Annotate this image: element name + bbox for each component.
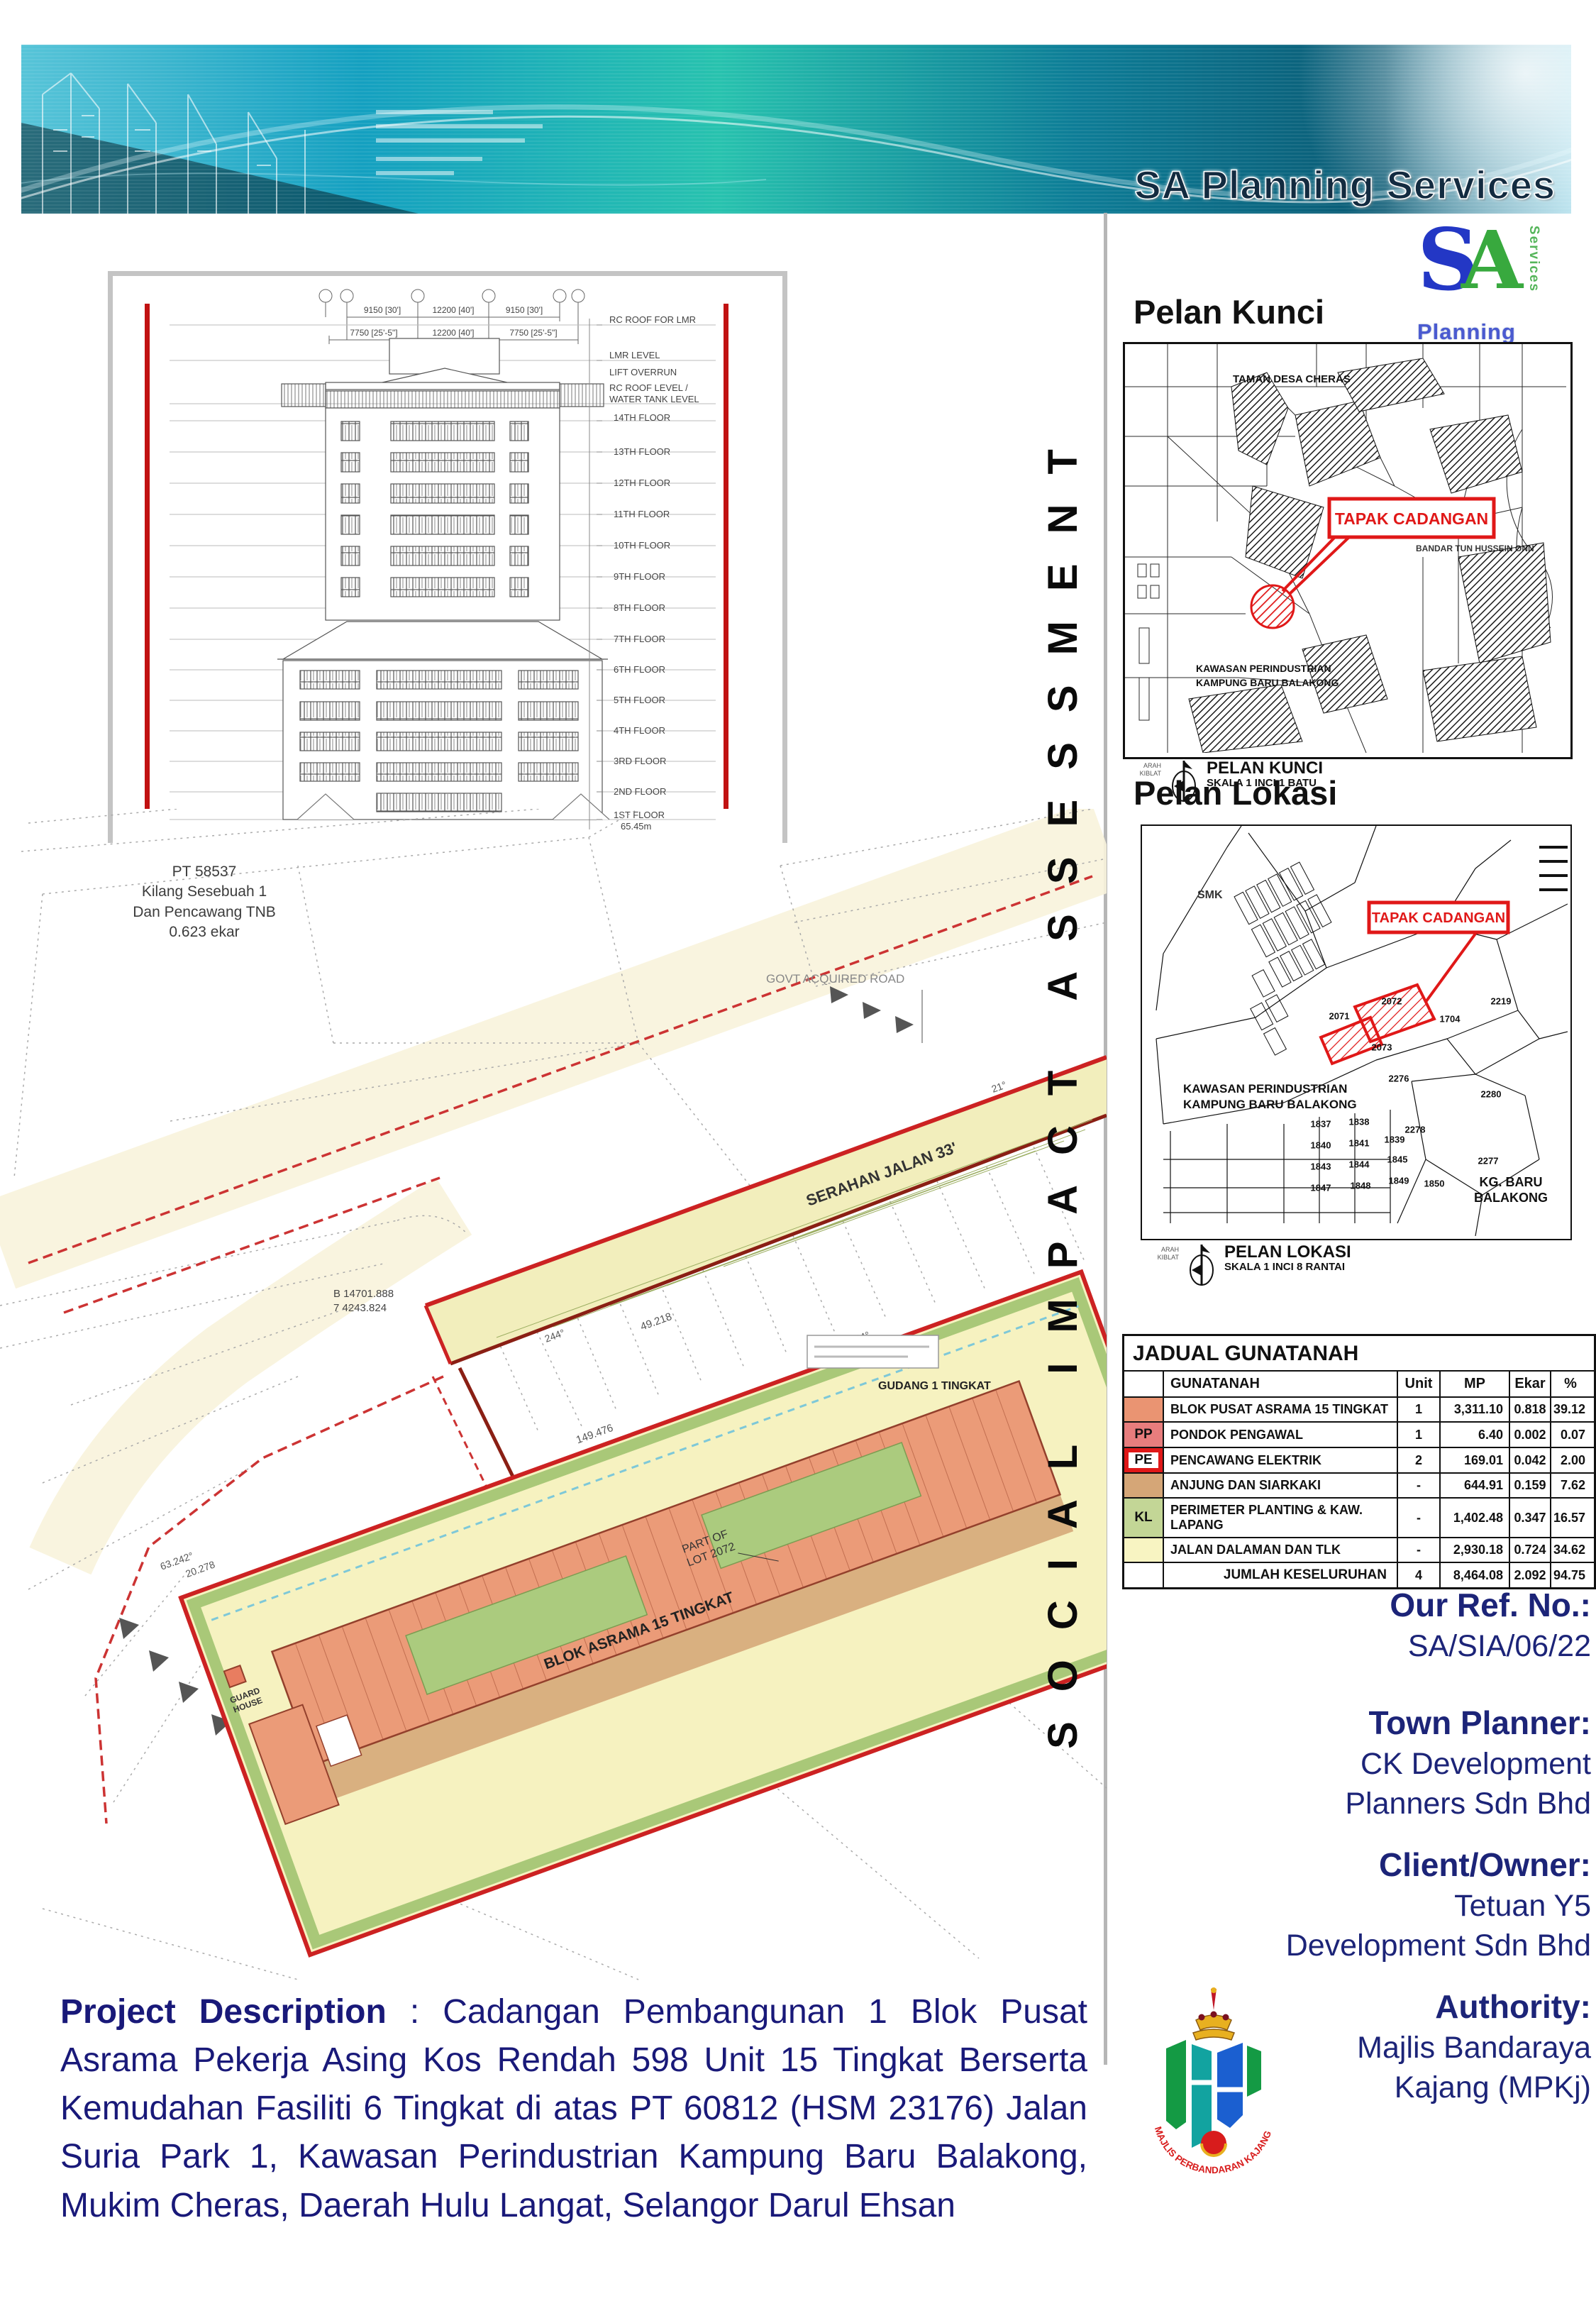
floor-label: 2ND FLOOR	[614, 786, 666, 797]
header-pct: %	[1551, 1372, 1590, 1396]
dim-label: 7750 [25'-5"]	[350, 328, 397, 338]
planner-label: Town Planner:	[1117, 1701, 1591, 1745]
site-layout-plan: SERAHAN JALAN 33' 49.218 244° 21° GOVT A…	[0, 809, 1107, 1983]
row-unit: 1	[1398, 1398, 1441, 1421]
row-name: ANJUNG DAN SIARKAKI	[1164, 1474, 1398, 1497]
floor-label: 11TH FLOOR	[614, 509, 670, 519]
floor-label: LIFT OVERRUN	[609, 367, 677, 377]
row-swatch	[1124, 1474, 1164, 1497]
table-row: ANJUNG DAN SIARKAKI - 644.91 0.159 7.62	[1124, 1474, 1594, 1499]
sa-logo-a: A	[1461, 214, 1523, 307]
floor-label: 10TH FLOOR	[614, 540, 670, 551]
ref-value: SA/SIA/06/22	[1117, 1627, 1591, 1667]
ref-block: Our Ref. No.: SA/SIA/06/22	[1117, 1584, 1591, 1667]
dim-label: 9150 [30']	[506, 305, 543, 315]
mpkj-crown	[1193, 1987, 1234, 2040]
lot-number-label: 2071	[1329, 1011, 1350, 1022]
floor-label: 13TH FLOOR	[614, 446, 670, 457]
row-ekar: 0.042	[1510, 1448, 1551, 1472]
lot-number-label: 1843	[1311, 1162, 1331, 1172]
lot-number-label: 1837	[1311, 1119, 1331, 1130]
lot-number-label: 1841	[1349, 1138, 1370, 1149]
gudang-label: GUDANG 1 TINGKAT	[878, 1380, 991, 1392]
lot-number-label: 2072	[1382, 996, 1402, 1007]
row-mp: 2,930.18	[1441, 1538, 1510, 1562]
floor-label: 3RD FLOOR	[614, 756, 666, 766]
lot-number-label: 1840	[1311, 1140, 1331, 1151]
coord-line1: B 14701.888	[333, 1288, 394, 1300]
row-swatch	[1124, 1398, 1164, 1421]
row-name: PERIMETER PLANTING & KAW. LAPANG	[1164, 1499, 1398, 1537]
client-label: Client/Owner:	[1117, 1843, 1591, 1887]
table-title: JADUAL GUNATANAH	[1124, 1336, 1594, 1372]
poster-page: SA Planning Services S A Planning Servic…	[0, 0, 1596, 2306]
lot-number-label: 1704	[1440, 1014, 1461, 1025]
table-row: PE PENCAWANG ELEKTRIK 2 169.01 0.042 2.0…	[1124, 1448, 1594, 1474]
lot-number-label: 1845	[1387, 1154, 1408, 1165]
coord-line2: 7 4243.824	[333, 1302, 387, 1314]
row-unit: -	[1398, 1474, 1441, 1497]
row-ekar: 0.818	[1510, 1398, 1551, 1421]
row-mp: 3,311.10	[1441, 1398, 1510, 1421]
elevation-red-line-right	[724, 304, 728, 809]
row-swatch: PP	[1124, 1423, 1164, 1447]
header-unit: Unit	[1398, 1372, 1441, 1396]
pt-parcel-label: PT 58537 Kilang Sesebuah 1 Dan Pencawang…	[84, 862, 325, 942]
row-ekar: 0.002	[1510, 1423, 1551, 1447]
row-unit: -	[1398, 1499, 1441, 1537]
floor-label: 7TH FLOOR	[614, 634, 665, 644]
pelan-kunci-map: TAMAN DESA CHERAS BANDAR TUN HUSSEIN ONN…	[1123, 342, 1573, 759]
dim-label: 12200 [40']	[432, 328, 474, 338]
kunci-label-kawasan-1: KAWASAN PERINDUSTRIAN	[1196, 663, 1331, 674]
pelan-kunci-heading: Pelan Kunci	[1134, 292, 1324, 331]
header-mp: MP	[1441, 1372, 1510, 1396]
floor-label: LMR LEVEL	[609, 350, 660, 360]
lokasi-arrow-note: ARAH KIBLAT	[1141, 1243, 1179, 1262]
vertical-title-social-impact-assessment: SOCIAL IMPACT ASSESSMENT	[1039, 407, 1089, 1762]
lot-number-label: 1838	[1349, 1117, 1370, 1127]
client-line2: Development Sdn Bhd	[1117, 1926, 1591, 1966]
row-mp: 6.40	[1441, 1423, 1510, 1447]
table-row: JALAN DALAMAN DAN TLK - 2,930.18 0.724 3…	[1124, 1538, 1594, 1563]
row-name: PENCAWANG ELEKTRIK	[1164, 1448, 1398, 1472]
header-gunatanah: GUNATANAH	[1164, 1372, 1398, 1396]
header-swatch-spacer	[1124, 1372, 1164, 1396]
ref-label: Our Ref. No.:	[1117, 1584, 1591, 1627]
floor-label: 9TH FLOOR	[614, 571, 665, 582]
lot-number-label: 1847	[1311, 1183, 1331, 1193]
kunci-label-kawasan-2: KAMPUNG BARU BALAKONG	[1196, 677, 1339, 688]
dim-244: 244°	[543, 1327, 567, 1345]
row-pct: 16.57	[1551, 1499, 1590, 1537]
floor-label: 8TH FLOOR	[614, 602, 665, 613]
row-name: BLOK PUSAT ASRAMA 15 TINGKAT	[1164, 1398, 1398, 1421]
row-pct: 39.12	[1551, 1398, 1590, 1421]
lot-number-label: 2280	[1481, 1089, 1502, 1100]
dim-49: 49.218	[639, 1311, 674, 1333]
project-description-label: Project Description	[60, 1993, 387, 2031]
row-pct: 7.62	[1551, 1474, 1590, 1497]
mpkj-emblem	[1166, 2040, 1261, 2156]
lot-number-label: 1844	[1349, 1159, 1370, 1170]
project-description: Project Description : Cadangan Pembangun…	[60, 1988, 1087, 2230]
lot-number-label: 1850	[1424, 1179, 1445, 1189]
row-ekar: 0.347	[1510, 1499, 1551, 1537]
row-pct: 0.07	[1551, 1423, 1590, 1447]
lot-number-label: 2277	[1478, 1156, 1499, 1166]
pelan-lokasi-caption: ARAH KIBLAT PELAN LOKASI SKALA 1 INCI 8 …	[1141, 1243, 1351, 1287]
kunci-callout-text: TAPAK CADANGAN	[1335, 509, 1488, 528]
pt-line: Dan Pencawang TNB	[84, 903, 325, 922]
elevation-red-line-left	[145, 304, 150, 809]
table-header-row: GUNATANAH Unit MP Ekar %	[1124, 1372, 1594, 1398]
row-pct: 34.62	[1551, 1538, 1590, 1562]
pt-line: Kilang Sesebuah 1	[84, 882, 325, 902]
row-name: PONDOK PENGAWAL	[1164, 1423, 1398, 1447]
lot-number-label: 2073	[1372, 1042, 1392, 1053]
row-swatch: KL	[1124, 1499, 1164, 1537]
building-elevation-panel: 9150 [30'] 12200 [40'] 9150 [30'] 7750 […	[108, 271, 787, 843]
dim-label: 12200 [40']	[432, 305, 474, 315]
floor-label: 5TH FLOOR	[614, 695, 665, 705]
govt-road-label: GOVT ACQUIRED ROAD	[766, 972, 904, 986]
planner-line2: Planners Sdn Bhd	[1117, 1784, 1591, 1824]
lot-number-label: 1839	[1385, 1135, 1405, 1145]
row-pct: 2.00	[1551, 1448, 1590, 1472]
pelan-lokasi-map: TAPAK CADANGAN SMK KAWASAN PERINDUSTRIAN…	[1141, 824, 1572, 1240]
lot-number-label: 1848	[1351, 1181, 1371, 1191]
lot-number-label: 2278	[1405, 1125, 1426, 1135]
lokasi-caption-title: PELAN LOKASI	[1224, 1243, 1351, 1261]
planner-block: Town Planner: CK Development Planners Sd…	[1117, 1701, 1591, 1824]
row-name: JALAN DALAMAN DAN TLK	[1164, 1538, 1398, 1562]
lot-number-label: 2219	[1491, 996, 1512, 1007]
row-unit: 2	[1398, 1448, 1441, 1472]
row-ekar: 0.724	[1510, 1538, 1551, 1562]
pelan-lokasi-heading: Pelan Lokasi	[1134, 773, 1337, 812]
sa-logo-planning: Planning	[1417, 319, 1516, 345]
floor-label: WATER TANK LEVEL	[609, 394, 699, 404]
mpkj-authority-logo: MAJLIS PERBANDARAN KAJANG	[1146, 1983, 1281, 2196]
table-row: BLOK PUSAT ASRAMA 15 TINGKAT 1 3,311.10 …	[1124, 1398, 1594, 1423]
row-mp: 169.01	[1441, 1448, 1510, 1472]
row-unit: 1	[1398, 1423, 1441, 1447]
jadual-gunatanah-table: JADUAL GUNATANAH GUNATANAH Unit MP Ekar …	[1122, 1334, 1596, 1589]
siteplan-note-box	[807, 1335, 938, 1368]
lokasi-caption-scale: SKALA 1 INCI 8 RANTAI	[1224, 1261, 1351, 1273]
row-swatch: PE	[1124, 1448, 1164, 1472]
header-banner: SA Planning Services	[21, 45, 1571, 214]
elevation-drawing: 9150 [30'] 12200 [40'] 9150 [30'] 7750 […	[113, 276, 782, 842]
project-description-separator: :	[387, 1993, 443, 2031]
planner-line1: CK Development	[1117, 1745, 1591, 1784]
table-row: KL PERIMETER PLANTING & KAW. LAPANG - 1,…	[1124, 1499, 1594, 1538]
client-block: Client/Owner: Tetuan Y5 Development Sdn …	[1117, 1843, 1591, 1966]
floor-label: 4TH FLOOR	[614, 725, 665, 736]
header-ekar: Ekar	[1510, 1372, 1551, 1396]
client-line1: Tetuan Y5	[1117, 1887, 1591, 1926]
sa-logo-services: Services	[1526, 226, 1541, 292]
lokasi-lot-labels: 2071207220731704221922762280227822771837…	[1142, 826, 1570, 1239]
row-mp: 1,402.48	[1441, 1499, 1510, 1537]
table-row: PP PONDOK PENGAWAL 1 6.40 0.002 0.07	[1124, 1423, 1594, 1448]
row-swatch	[1124, 1538, 1164, 1562]
lot-number-label: 1849	[1389, 1176, 1409, 1186]
row-ekar: 0.159	[1510, 1474, 1551, 1497]
row-mp: 644.91	[1441, 1474, 1510, 1497]
kunci-label-taman: TAMAN DESA CHERAS	[1233, 373, 1351, 385]
pt-line: 0.623 ekar	[84, 922, 325, 942]
pt-line: PT 58537	[84, 862, 325, 882]
banner-brand-text: SA Planning Services	[1134, 162, 1556, 208]
kunci-label-bandar: BANDAR TUN HUSSEIN ONN	[1416, 544, 1534, 553]
floor-label: 12TH FLOOR	[614, 478, 670, 488]
dim-label: 9150 [30']	[364, 305, 401, 315]
pelan-kunci-map-art: TAMAN DESA CHERAS BANDAR TUN HUSSEIN ONN…	[1125, 344, 1566, 753]
floor-label: RC ROOF LEVEL /	[609, 382, 688, 393]
floor-label: RC ROOF FOR LMR	[609, 314, 696, 325]
floor-label: 6TH FLOOR	[614, 664, 665, 675]
row-unit: -	[1398, 1538, 1441, 1562]
dim-label: 7750 [25'-5"]	[509, 328, 557, 338]
floor-label: 14TH FLOOR	[614, 412, 670, 423]
lot-number-label: 2276	[1389, 1074, 1409, 1084]
north-arrow-icon	[1186, 1243, 1217, 1287]
